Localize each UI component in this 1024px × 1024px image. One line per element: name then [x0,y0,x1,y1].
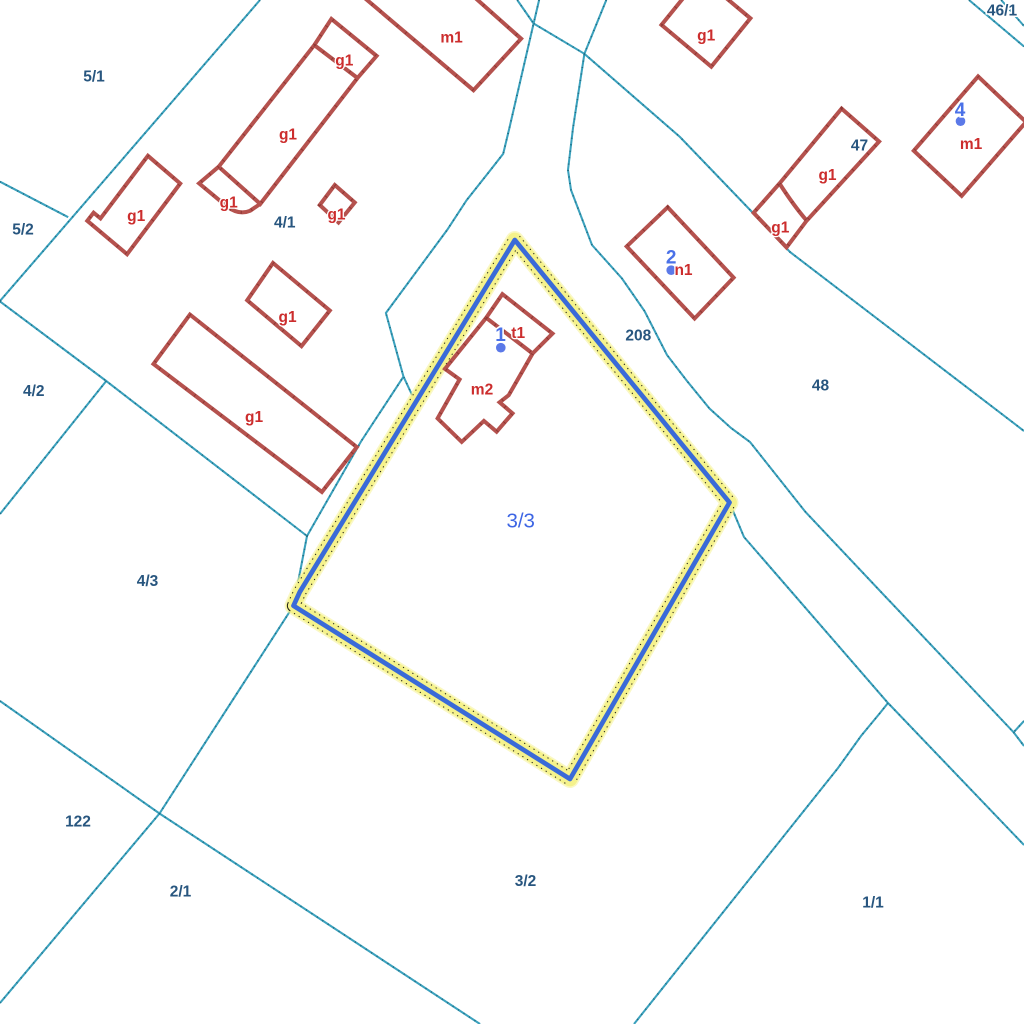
svg-text:n1: n1 [674,262,692,279]
svg-text:1/1: 1/1 [862,895,884,912]
svg-text:5/2: 5/2 [12,222,34,239]
svg-text:48: 48 [812,377,830,394]
svg-text:4/1: 4/1 [274,215,296,232]
svg-text:4/2: 4/2 [23,383,45,400]
svg-text:122: 122 [65,814,91,831]
svg-text:5/1: 5/1 [83,69,105,86]
svg-text:g1: g1 [127,208,145,225]
svg-text:g1: g1 [327,206,345,223]
svg-text:g1: g1 [220,194,238,211]
svg-text:2: 2 [666,248,677,269]
svg-text:3/3: 3/3 [506,510,535,533]
svg-text:g1: g1 [697,28,715,45]
svg-text:t1: t1 [511,325,525,342]
svg-text:g1: g1 [771,220,789,237]
svg-text:g1: g1 [245,409,263,426]
svg-text:4: 4 [955,100,966,121]
svg-text:m1: m1 [960,136,983,153]
svg-text:2/1: 2/1 [170,884,192,901]
svg-text:46/1: 46/1 [987,3,1018,20]
svg-text:1: 1 [495,325,506,346]
svg-text:m1: m1 [440,29,463,46]
svg-text:m2: m2 [471,382,493,399]
svg-text:g1: g1 [818,167,836,184]
svg-text:47: 47 [851,137,868,154]
svg-text:g1: g1 [279,127,297,144]
svg-text:g1: g1 [279,309,297,326]
svg-text:g1: g1 [335,53,353,70]
svg-text:4/3: 4/3 [137,573,159,590]
svg-text:3/2: 3/2 [515,873,537,890]
svg-text:208: 208 [625,328,651,345]
